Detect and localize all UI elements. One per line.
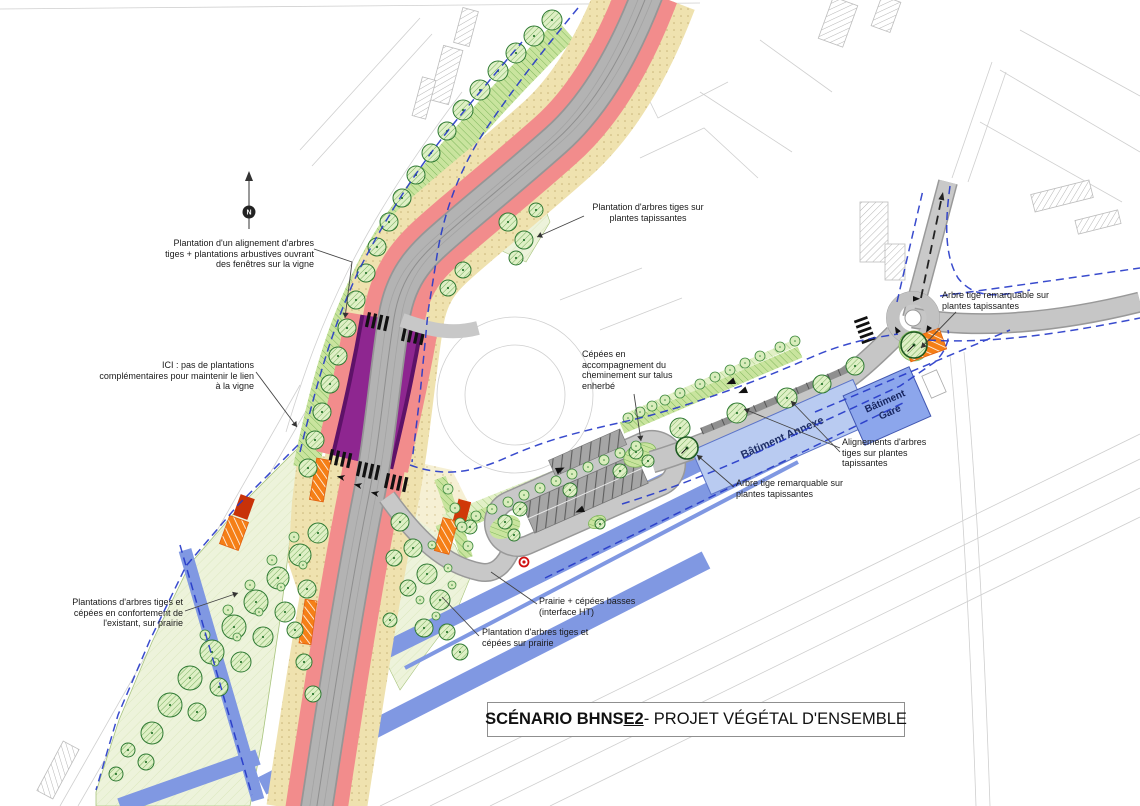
tree-tige-symbol <box>321 375 339 393</box>
tree-cepee-symbol <box>775 342 785 352</box>
tree-tige-symbol <box>506 43 526 63</box>
tree-cepee-symbol <box>487 504 497 514</box>
tree-cepee-symbol <box>255 608 263 616</box>
tree-tige-symbol <box>253 627 273 647</box>
tree-tige-symbol <box>231 652 251 672</box>
tree-tige-symbol <box>338 319 356 337</box>
tree-tige-symbol <box>391 513 409 531</box>
site-plan-canvas: Bâtiment Annexe Bâtiment Gare N <box>0 0 1140 806</box>
tree-tige-symbol <box>357 264 375 282</box>
tree-tige-symbol <box>417 564 437 584</box>
tree-tige-symbol <box>513 502 527 516</box>
plan-title-suffix: - PROJET VÉGÉTAL D'ENSEMBLE <box>644 710 907 729</box>
tree-tige-symbol <box>383 613 397 627</box>
tree-cepee-symbol <box>551 476 561 486</box>
tree-cepee-symbol <box>448 581 456 589</box>
red-point-marker <box>520 558 529 567</box>
tree-tige-symbol <box>404 539 422 557</box>
leader-arrow <box>291 421 297 427</box>
tree-cepee-symbol <box>277 583 285 591</box>
tree-cepee-symbol <box>450 503 460 513</box>
existing-building <box>871 0 901 32</box>
tree-cepee-symbol <box>503 497 513 507</box>
tree-cepee-symbol <box>660 395 670 405</box>
plan-title-variant: E2 <box>624 710 644 729</box>
tree-tige-symbol <box>727 403 747 423</box>
tree-tige-symbol <box>455 262 471 278</box>
tree-cepee-symbol <box>615 448 625 458</box>
existing-building <box>1031 180 1094 212</box>
tree-cepee-symbol <box>755 351 765 361</box>
annotation-arbres-tapissantes-nord: Plantation d'arbres tiges sur plantes ta… <box>586 202 710 223</box>
tree-cepee-symbol <box>233 633 241 641</box>
tree-cepee-symbol <box>267 555 277 565</box>
tree-tige-symbol <box>188 703 206 721</box>
tree-tige-symbol <box>813 375 831 393</box>
tree-tige-symbol <box>109 767 123 781</box>
plan-title-scenario: SCÉNARIO BHNS <box>485 710 623 729</box>
tree-cepee-symbol <box>245 580 255 590</box>
tree-remarkable-symbol <box>676 437 698 459</box>
annotation-alignements-gare: Alignements d'arbres tiges sur plantes t… <box>842 437 944 469</box>
tree-tige-symbol <box>613 464 627 478</box>
tree-cepee-symbol <box>599 455 609 465</box>
tree-cepee-symbol <box>471 511 481 521</box>
tree-tige-symbol <box>498 515 512 529</box>
tree-tige-symbol <box>138 754 154 770</box>
tree-tige-symbol <box>430 590 450 610</box>
tree-tige-symbol <box>296 654 312 670</box>
tree-cepee-symbol <box>695 379 705 389</box>
tree-tige-symbol <box>178 666 202 690</box>
annotation-confortement-prairie: Plantations d'arbres tiges et cépées en … <box>45 597 183 629</box>
tree-tige-symbol <box>670 418 690 438</box>
tree-tige-symbol <box>529 203 543 217</box>
tree-cepee-symbol <box>675 388 685 398</box>
tree-tige-symbol <box>299 459 317 477</box>
tree-tige-symbol <box>298 580 316 598</box>
tree-tige-symbol <box>386 550 402 566</box>
tree-tige-symbol <box>452 644 468 660</box>
leader-line <box>314 249 352 318</box>
tree-tige-symbol <box>415 619 433 637</box>
annotation-alignement-vigne: Plantation d'un alignement d'arbres tige… <box>158 238 314 270</box>
existing-building <box>1075 210 1121 234</box>
tree-tige-symbol <box>499 213 517 231</box>
tree-cepee-symbol <box>583 462 593 472</box>
tree-tige-symbol <box>515 231 533 249</box>
existing-building <box>818 0 857 47</box>
tree-cepee-symbol <box>567 469 577 479</box>
annotation-prairie-cepees-basses: Prairie + cépées basses (interface HT) <box>539 596 647 617</box>
tree-cepee-symbol <box>725 365 735 375</box>
tree-cepee-symbol <box>416 596 424 604</box>
tree-cepee-symbol <box>631 441 641 451</box>
tree-tige-symbol <box>508 529 520 541</box>
tree-tige-symbol <box>400 580 416 596</box>
annotation-cepees-cheminement: Cépées en accompagnement du cheminement … <box>582 349 674 391</box>
tree-tige-symbol <box>595 519 605 529</box>
tree-tige-symbol <box>642 455 654 467</box>
tree-tige-symbol <box>158 693 182 717</box>
tree-tige-symbol <box>542 10 562 30</box>
tree-cepee-symbol <box>710 372 720 382</box>
tree-tige-symbol <box>439 624 455 640</box>
plan-title-box: SCÉNARIO BHNS E2 - PROJET VÉGÉTAL D'ENSE… <box>487 702 905 737</box>
annotation-ici-pas-plantations: ICI : pas de plantations complémentaires… <box>92 360 254 392</box>
tree-tige-symbol <box>306 431 324 449</box>
tree-tige-symbol <box>368 238 386 256</box>
tree-tige-symbol <box>121 743 135 757</box>
tree-cepee-symbol <box>535 483 545 493</box>
tree-tige-symbol <box>347 291 365 309</box>
tree-cepee-symbol <box>200 630 210 640</box>
annotation-arbre-remarquable-parvis: Arbre tige remarquable sur plantes tapis… <box>736 478 854 499</box>
tree-cepee-symbol <box>457 522 467 532</box>
annotation-arbre-remarquable-giratoire: Arbre tige remarquable sur plantes tapis… <box>942 290 1054 311</box>
tree-tige-symbol <box>305 686 321 702</box>
tree-tige-symbol <box>329 347 347 365</box>
existing-building <box>885 244 905 280</box>
tree-cepee-symbol <box>790 336 800 346</box>
tree-tige-symbol <box>563 483 577 497</box>
tree-cepee-symbol <box>519 490 529 500</box>
site-plan-drawing: Bâtiment Annexe Bâtiment Gare N <box>0 0 1140 806</box>
north-label: N <box>246 210 251 217</box>
tree-cepee-symbol <box>647 401 657 411</box>
annotation-plantation-sur-prairie: Plantation d'arbres tiges et cépées sur … <box>482 627 594 648</box>
tree-cepee-symbol <box>740 358 750 368</box>
tree-cepee-symbol <box>289 532 299 542</box>
tree-tige-symbol <box>524 26 544 46</box>
tree-tige-symbol <box>287 622 303 638</box>
existing-building <box>37 741 79 799</box>
tree-tige-symbol <box>313 403 331 421</box>
tree-cepee-symbol <box>223 605 233 615</box>
tree-cepee-symbol <box>428 541 436 549</box>
tree-cepee-symbol <box>299 561 307 569</box>
tree-cepee-symbol <box>443 484 453 494</box>
crossing-roundabout <box>854 316 876 344</box>
tree-tige-symbol <box>308 523 328 543</box>
existing-building <box>429 45 463 104</box>
existing-building <box>454 8 479 47</box>
tree-tige-symbol <box>210 678 228 696</box>
tree-cepee-symbol <box>432 612 440 620</box>
leader-line <box>256 372 297 427</box>
tree-cepee-symbol <box>463 541 473 551</box>
existing-building <box>860 202 888 262</box>
tree-cepee-symbol <box>444 564 452 572</box>
north-arrow-icon: N <box>243 171 256 229</box>
tree-tige-symbol <box>509 251 523 265</box>
tree-tige-symbol <box>846 357 864 375</box>
tree-tige-symbol <box>275 602 295 622</box>
outbuilding <box>922 370 946 398</box>
tree-tige-symbol <box>141 722 163 744</box>
tree-tige-symbol <box>440 280 456 296</box>
